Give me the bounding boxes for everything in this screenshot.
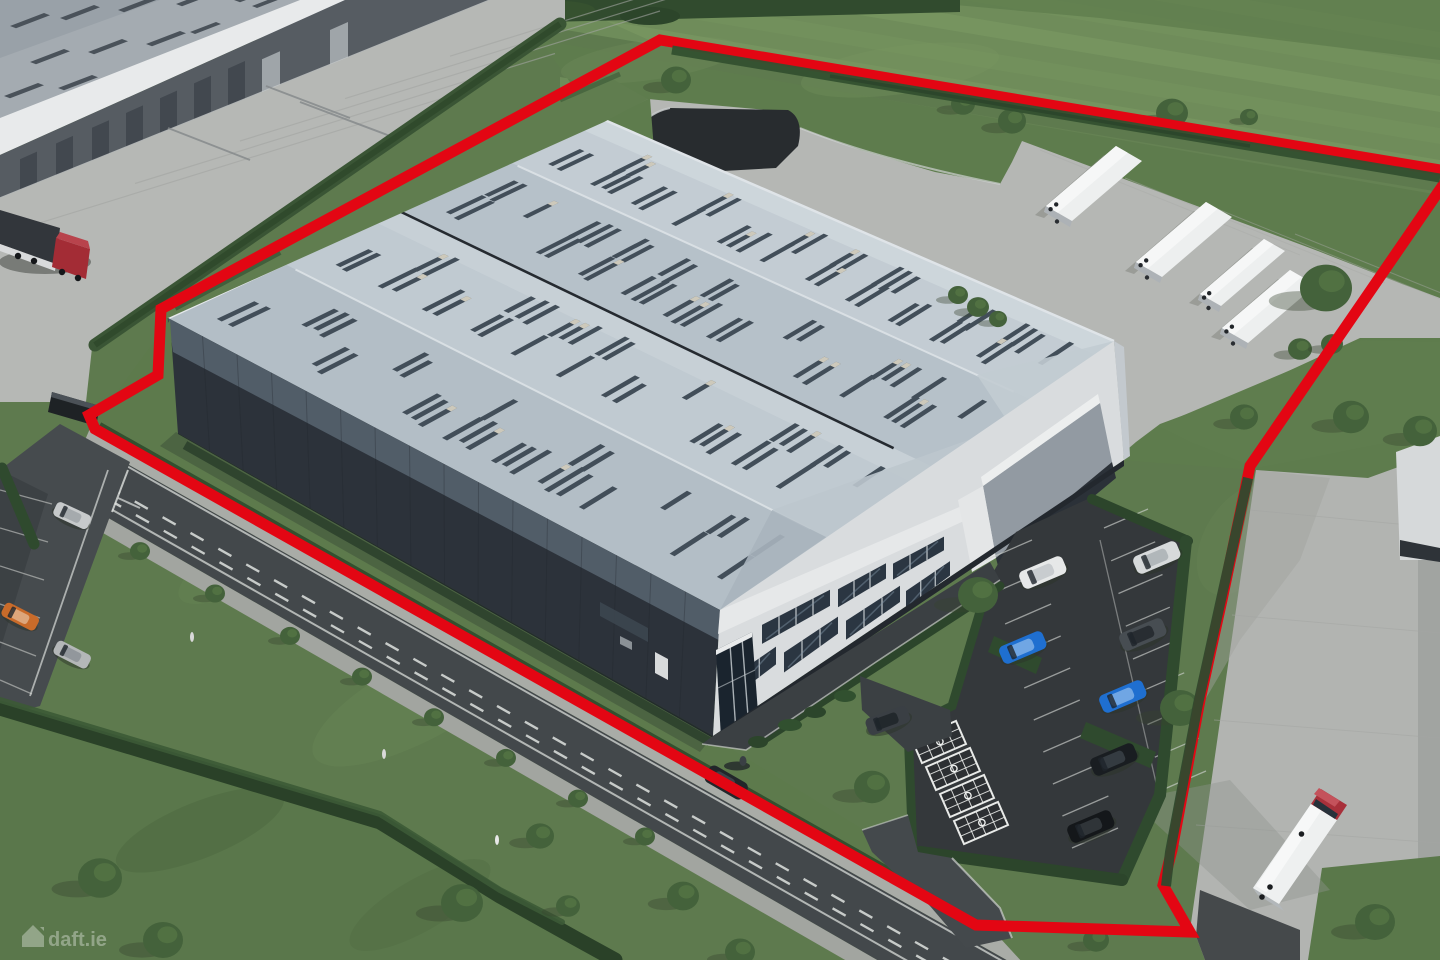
svg-text:daft.ie: daft.ie	[48, 929, 107, 951]
